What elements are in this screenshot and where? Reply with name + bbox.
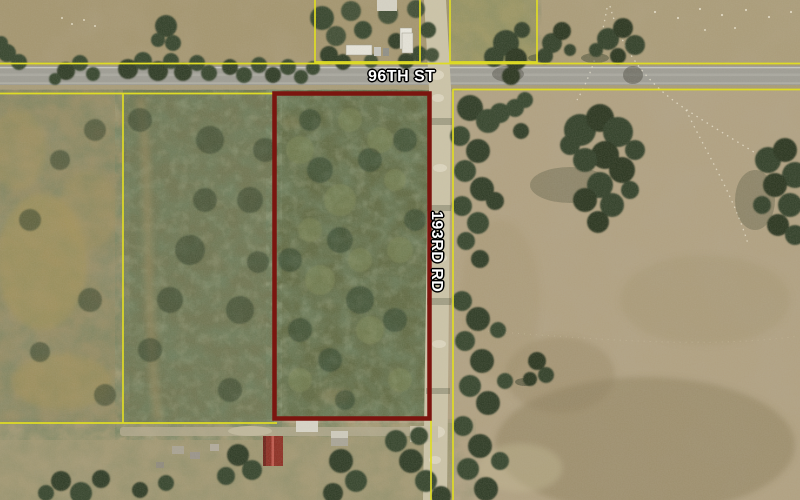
road-label-193rd-rd: 193RD RD xyxy=(428,211,444,292)
road-label-96th-st: 96TH ST xyxy=(368,69,436,85)
aerial-parcel-map: 96TH ST 193RD RD xyxy=(0,0,800,500)
